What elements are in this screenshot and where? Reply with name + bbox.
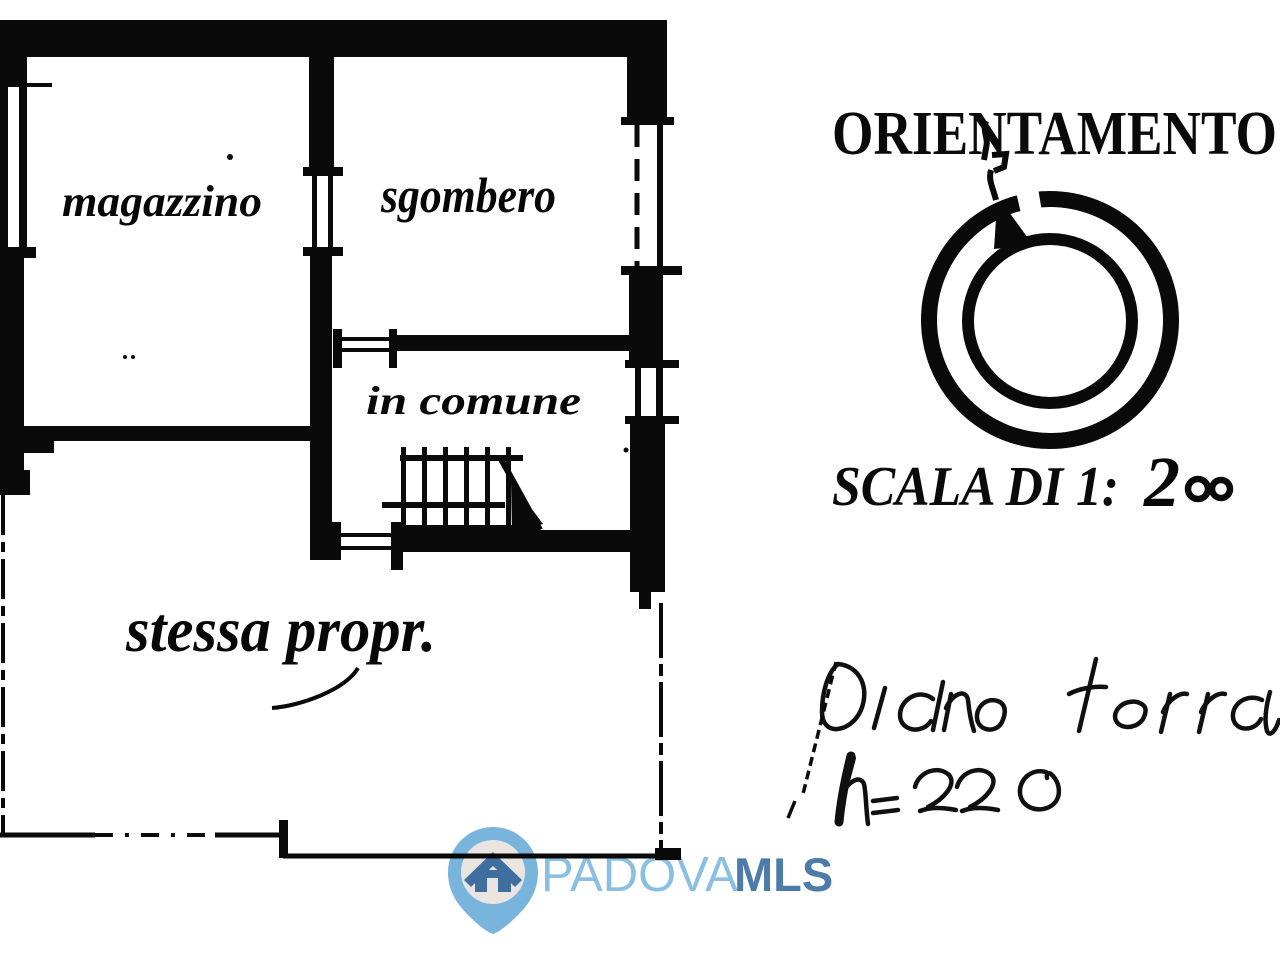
- svg-text:PADOVA: PADOVA: [541, 848, 738, 902]
- svg-text:MLS: MLS: [734, 848, 833, 901]
- svg-text:stessa propr.: stessa propr.: [125, 594, 436, 665]
- svg-text:2: 2: [1143, 442, 1180, 522]
- svg-text:in comune: in comune: [366, 378, 581, 423]
- svg-text:ORIENTAMENTO: ORIENTAMENTO: [832, 100, 1277, 168]
- svg-text:magazzino: magazzino: [62, 177, 262, 226]
- svg-text:SCALA DI 1:: SCALA DI 1:: [832, 456, 1119, 518]
- svg-text:sgombero: sgombero: [380, 167, 556, 223]
